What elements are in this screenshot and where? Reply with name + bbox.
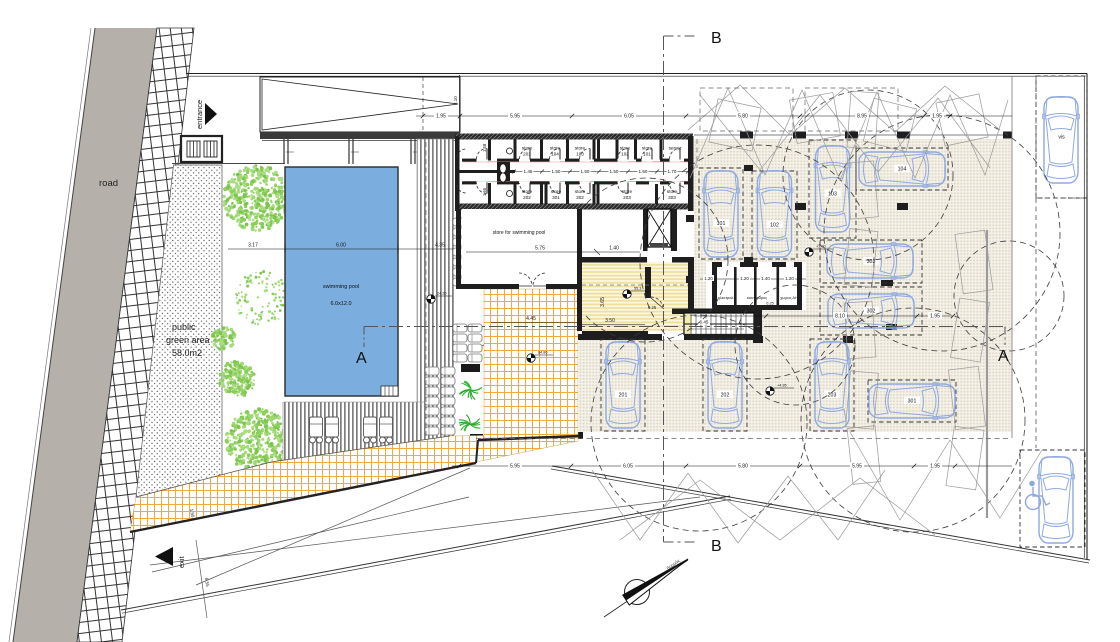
svg-text:6.05: 6.05: [624, 114, 634, 120]
svg-text:1.20: 1.20: [785, 276, 794, 281]
svg-text:1.50: 1.50: [610, 169, 619, 174]
svg-text:server: server: [669, 146, 682, 151]
svg-text:road: road: [99, 178, 118, 189]
svg-text:1.40: 1.40: [609, 246, 619, 252]
svg-text:5.95: 5.95: [510, 464, 520, 470]
svg-text:1.95: 1.95: [932, 114, 942, 120]
svg-text:1.95: 1.95: [930, 464, 940, 470]
svg-text:1.95: 1.95: [436, 114, 446, 120]
svg-text:104: 104: [898, 167, 907, 173]
svg-text:store: store: [622, 189, 633, 194]
svg-text:203: 203: [828, 393, 837, 399]
svg-text:1.20: 1.20: [704, 276, 713, 281]
svg-text:entrance: entrance: [195, 100, 204, 129]
svg-text:101: 101: [717, 221, 726, 227]
svg-text:χωρος ΑΗ: χωρος ΑΗ: [780, 295, 798, 300]
svg-text:5.80: 5.80: [738, 114, 748, 120]
svg-text:3.50: 3.50: [605, 318, 615, 324]
svg-text:302: 302: [867, 309, 876, 315]
svg-text:8.95: 8.95: [857, 114, 867, 120]
svg-text:6.05: 6.05: [623, 464, 633, 470]
svg-text:301: 301: [552, 195, 560, 200]
svg-text:store: store: [522, 189, 533, 194]
svg-text:vis: vis: [1058, 135, 1065, 141]
svg-text:5.95: 5.95: [852, 464, 862, 470]
svg-text:8.10: 8.10: [835, 314, 845, 320]
svg-text:B: B: [711, 30, 722, 47]
svg-text:202: 202: [523, 195, 531, 200]
svg-text:1.50: 1.50: [639, 169, 648, 174]
svg-text:103: 103: [576, 152, 584, 157]
svg-text:301: 301: [908, 399, 917, 405]
svg-text:3.65: 3.65: [600, 297, 606, 307]
svg-text:store: store: [575, 189, 586, 194]
svg-text:3.10: 3.10: [453, 96, 458, 105]
svg-text:public: public: [172, 322, 196, 332]
svg-text:store: store: [522, 146, 533, 151]
svg-text:0.25: 0.25: [766, 301, 774, 306]
svg-text:+3.00: +3.00: [816, 245, 826, 249]
svg-text:101: 101: [643, 152, 651, 157]
svg-text:24.20: 24.20: [437, 292, 447, 296]
svg-text:store: store: [575, 146, 586, 151]
svg-text:1.45: 1.45: [524, 169, 533, 174]
svg-text:store: store: [620, 146, 631, 151]
svg-text:store: store: [550, 146, 561, 151]
svg-text:exit: exit: [177, 555, 186, 568]
svg-text:1.50: 1.50: [552, 169, 561, 174]
svg-text:1.65: 1.65: [482, 187, 487, 196]
svg-text:104: 104: [551, 152, 559, 157]
svg-text:1.95: 1.95: [930, 314, 940, 320]
svg-text:201: 201: [619, 393, 628, 399]
svg-text:201: 201: [523, 152, 531, 157]
svg-text:5.80: 5.80: [738, 464, 748, 470]
svg-text:store: store: [642, 146, 653, 151]
svg-text:6.00: 6.00: [336, 243, 346, 249]
svg-text:A: A: [998, 348, 1009, 365]
svg-text:202: 202: [721, 393, 730, 399]
svg-text:κοιν. χωρος: κοιν. χωρος: [747, 295, 767, 300]
svg-text:green area: green area: [166, 335, 210, 345]
svg-text:A: A: [356, 350, 367, 367]
svg-text:4.35: 4.35: [435, 243, 445, 249]
svg-text:4.45: 4.45: [526, 316, 536, 322]
svg-text:84.86: 84.86: [538, 351, 548, 355]
svg-text:ηλεκτρολ.: ηλεκτρολ.: [718, 295, 735, 300]
svg-text:B: B: [711, 538, 722, 555]
svg-text:store: store: [667, 189, 678, 194]
svg-text:+4.35: +4.35: [777, 384, 787, 388]
svg-text:store for swimming pool: store for swimming pool: [493, 230, 546, 236]
svg-text:102: 102: [621, 152, 629, 157]
svg-text:302: 302: [576, 195, 584, 200]
svg-text:1.50: 1.50: [581, 169, 590, 174]
svg-text:55.3: 55.3: [634, 287, 641, 291]
svg-text:1.40: 1.40: [761, 276, 770, 281]
svg-text:swimming pool: swimming pool: [323, 284, 359, 290]
svg-text:3.17: 3.17: [248, 243, 258, 249]
svg-text:1.68: 1.68: [482, 143, 487, 152]
svg-text:1.20: 1.20: [740, 276, 749, 281]
svg-text:102: 102: [770, 223, 779, 229]
svg-text:5.75: 5.75: [535, 246, 545, 252]
svg-text:58.0m2: 58.0m2: [172, 348, 202, 358]
svg-text:store: store: [551, 189, 562, 194]
svg-text:103: 103: [828, 192, 837, 198]
svg-text:1.70: 1.70: [668, 169, 677, 174]
svg-text:6.0x12.0: 6.0x12.0: [330, 301, 351, 307]
svg-text:303: 303: [668, 195, 676, 200]
svg-text:5.95: 5.95: [510, 114, 520, 120]
svg-text:6.45: 6.45: [700, 320, 709, 325]
svg-text:203: 203: [623, 195, 631, 200]
